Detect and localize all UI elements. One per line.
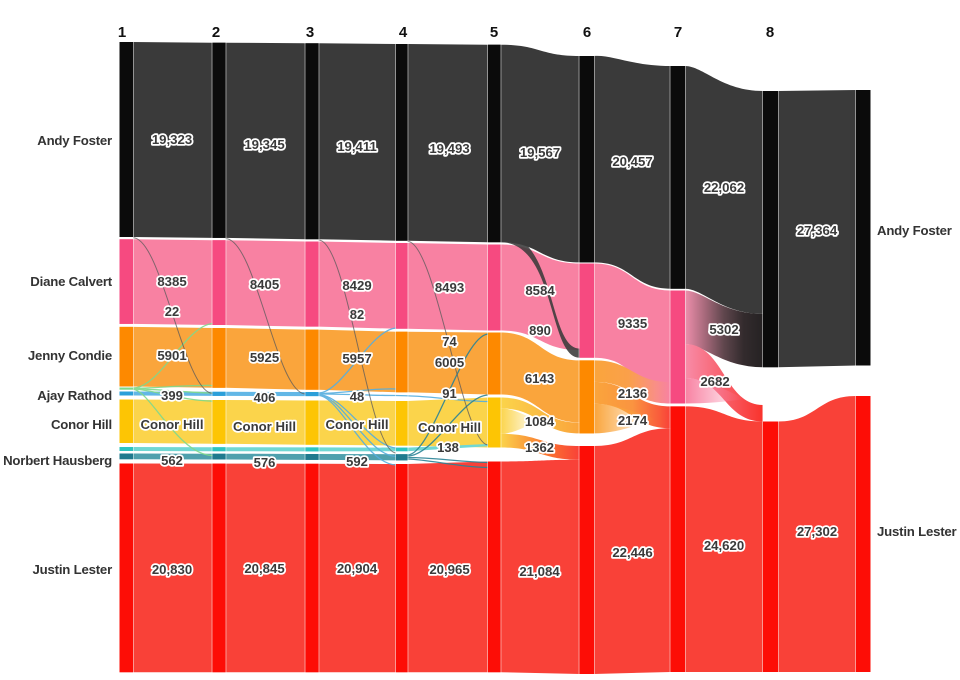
svg-text:20,845: 20,845 (244, 561, 284, 576)
svg-text:8429: 8429 (342, 278, 371, 293)
svg-text:562: 562 (161, 453, 183, 468)
svg-text:22,446: 22,446 (612, 545, 652, 560)
svg-text:890: 890 (529, 323, 551, 338)
svg-text:Andy Foster: Andy Foster (37, 133, 112, 148)
svg-text:7: 7 (674, 24, 682, 41)
svg-text:19,323: 19,323 (152, 132, 192, 147)
svg-text:5957: 5957 (342, 351, 371, 366)
svg-text:Diane Calvert: Diane Calvert (30, 274, 112, 289)
svg-text:19,411: 19,411 (337, 139, 377, 154)
svg-text:3: 3 (306, 24, 314, 41)
svg-text:5: 5 (490, 24, 498, 41)
svg-text:19,567: 19,567 (520, 145, 560, 160)
svg-text:576: 576 (254, 455, 276, 470)
svg-text:5302: 5302 (709, 322, 738, 337)
svg-text:19,493: 19,493 (429, 141, 469, 156)
svg-text:22,062: 22,062 (704, 180, 744, 195)
svg-text:8: 8 (766, 24, 774, 41)
svg-text:82: 82 (350, 307, 364, 322)
svg-text:2136: 2136 (618, 386, 647, 401)
svg-text:592: 592 (346, 454, 368, 469)
svg-text:1: 1 (118, 24, 126, 41)
svg-text:9335: 9335 (618, 316, 647, 331)
svg-text:5901: 5901 (157, 348, 186, 363)
svg-text:5925: 5925 (250, 350, 279, 365)
svg-text:20,965: 20,965 (429, 562, 469, 577)
svg-text:27,364: 27,364 (797, 223, 838, 238)
svg-text:Conor Hill: Conor Hill (140, 417, 203, 432)
svg-text:74: 74 (442, 334, 457, 349)
svg-text:20,904: 20,904 (337, 561, 378, 576)
svg-text:6: 6 (583, 24, 591, 41)
svg-text:20,457: 20,457 (612, 154, 652, 169)
svg-text:21,084: 21,084 (519, 564, 560, 579)
svg-text:1362: 1362 (525, 440, 554, 455)
svg-text:Justin Lester: Justin Lester (877, 524, 957, 539)
svg-text:24,620: 24,620 (704, 538, 744, 553)
svg-text:8385: 8385 (157, 274, 186, 289)
svg-text:Conor Hill: Conor Hill (418, 420, 481, 435)
svg-text:Andy Foster: Andy Foster (877, 223, 952, 238)
svg-text:Conor Hill: Conor Hill (51, 417, 112, 432)
svg-text:6143: 6143 (525, 371, 554, 386)
svg-text:4: 4 (399, 24, 408, 41)
svg-text:8584: 8584 (525, 283, 555, 298)
svg-text:91: 91 (442, 386, 456, 401)
svg-text:Jenny Condie: Jenny Condie (28, 348, 112, 363)
svg-text:Conor Hill: Conor Hill (325, 417, 388, 432)
svg-text:399: 399 (161, 388, 183, 403)
svg-text:Ajay Rathod: Ajay Rathod (37, 388, 112, 403)
svg-text:2: 2 (212, 24, 220, 41)
svg-text:6005: 6005 (435, 355, 464, 370)
svg-text:Norbert Hausberg: Norbert Hausberg (3, 453, 112, 468)
svg-text:8405: 8405 (250, 277, 279, 292)
svg-text:406: 406 (254, 390, 276, 405)
svg-text:1084: 1084 (525, 414, 555, 429)
svg-text:138: 138 (437, 440, 459, 455)
svg-text:2682: 2682 (700, 374, 729, 389)
svg-text:Conor Hill: Conor Hill (233, 419, 296, 434)
svg-text:2174: 2174 (618, 413, 648, 428)
svg-text:Justin Lester: Justin Lester (33, 562, 113, 577)
svg-text:8493: 8493 (435, 280, 464, 295)
svg-text:48: 48 (350, 389, 364, 404)
svg-text:20,830: 20,830 (152, 562, 192, 577)
svg-text:27,302: 27,302 (797, 524, 837, 539)
svg-text:22: 22 (165, 304, 179, 319)
svg-text:19,345: 19,345 (244, 137, 284, 152)
